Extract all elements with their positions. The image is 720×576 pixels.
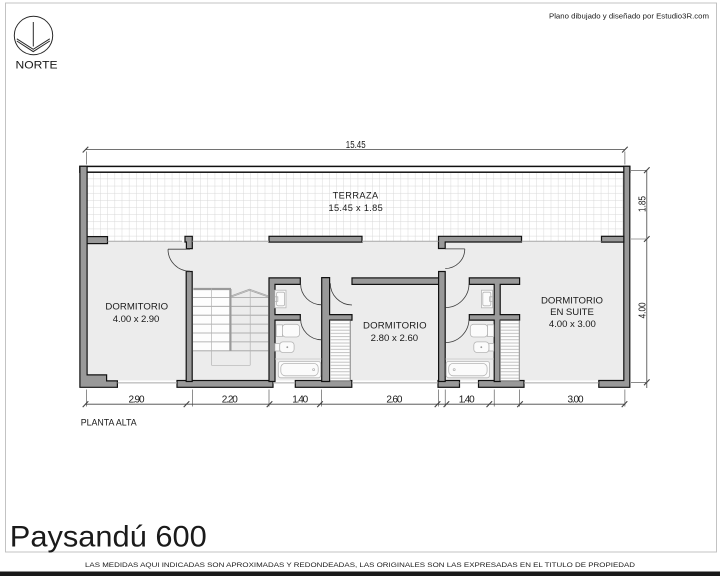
svg-text:3.00: 3.00 [568,394,584,405]
svg-text:NORTE: NORTE [16,60,58,72]
svg-text:DORMITORIO: DORMITORIO [541,295,603,306]
svg-text:4.00: 4.00 [638,302,649,318]
svg-text:15.45 x 1.85: 15.45 x 1.85 [329,203,383,213]
svg-text:Paysandú 600: Paysandú 600 [10,520,207,553]
svg-text:4.00 x 3.00: 4.00 x 3.00 [549,319,596,330]
svg-text:1.85: 1.85 [638,196,649,212]
svg-text:2.90: 2.90 [129,394,145,405]
svg-text:DORMITORIO: DORMITORIO [363,321,427,332]
svg-text:2.80 x 2.60: 2.80 x 2.60 [371,333,419,344]
svg-text:15.45: 15.45 [346,140,366,151]
svg-text:2.60: 2.60 [386,394,402,405]
svg-text:TERRAZA: TERRAZA [333,191,379,201]
svg-text:4.00 x 2.90: 4.00 x 2.90 [113,314,160,325]
svg-text:DORMITORIO: DORMITORIO [105,302,168,313]
svg-text:Plano dibujado y diseñado por: Plano dibujado y diseñado por Estudio3R.… [549,11,709,20]
svg-text:1.40: 1.40 [292,394,308,405]
svg-text:1.40: 1.40 [459,394,475,405]
svg-text:LAS MEDIDAS AQUI INDICADAS SON: LAS MEDIDAS AQUI INDICADAS SON APROXIMAD… [85,562,635,569]
svg-text:2.20: 2.20 [222,394,238,405]
svg-text:PLANTA ALTA: PLANTA ALTA [81,417,138,427]
svg-text:EN SUITE: EN SUITE [550,307,594,318]
